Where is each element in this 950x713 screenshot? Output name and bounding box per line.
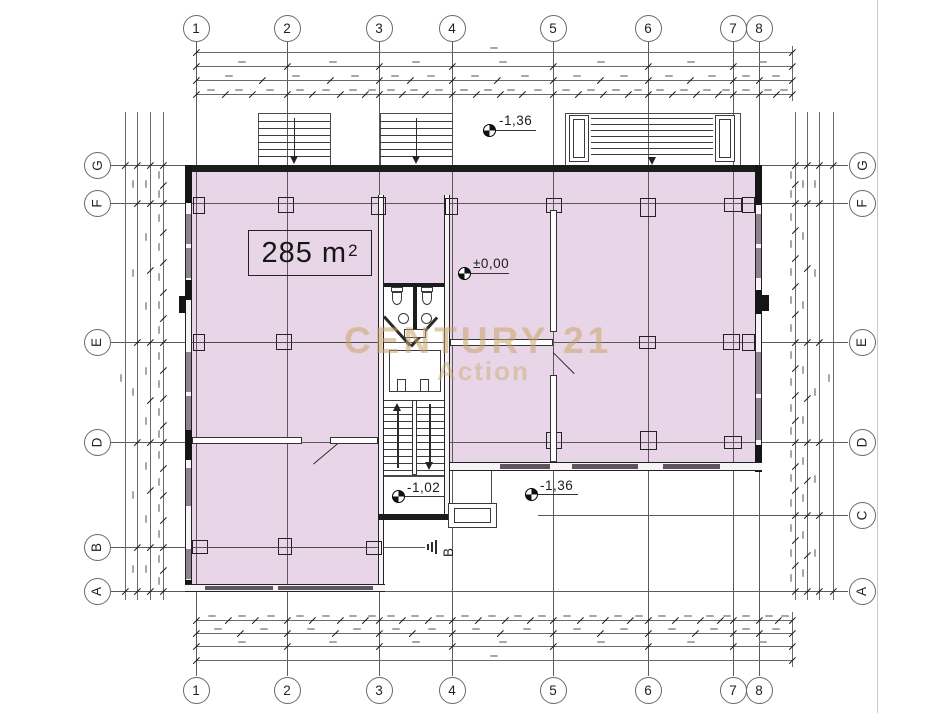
stair-arrow-head xyxy=(425,462,433,470)
dim-number xyxy=(349,89,357,91)
column xyxy=(724,198,742,212)
dim-number xyxy=(597,641,605,643)
dim-number xyxy=(368,89,376,91)
dim-number xyxy=(742,89,750,91)
dim-number xyxy=(790,213,792,221)
ext-stair-edge xyxy=(740,113,741,165)
dim-number xyxy=(158,577,160,585)
dim-number xyxy=(145,302,147,310)
ext-stair-edge xyxy=(258,113,330,114)
dim-number xyxy=(587,89,595,91)
dim-number xyxy=(461,615,469,617)
wall-pier xyxy=(185,280,192,300)
dim-number xyxy=(296,615,304,617)
lift-rail xyxy=(420,379,429,392)
section-marker-label: B xyxy=(441,548,456,557)
dim-number xyxy=(612,89,620,91)
ext-stair-arrow xyxy=(416,118,417,158)
stair-cheek-inner xyxy=(573,119,585,158)
ext-stair-tread xyxy=(591,142,713,143)
lift-rail xyxy=(397,379,406,392)
dim-number xyxy=(490,655,498,657)
grid-bubble-label: A xyxy=(854,586,869,595)
dim-number xyxy=(158,190,160,198)
dim-number xyxy=(353,628,361,630)
dim-number xyxy=(514,615,522,617)
elevation-value: -1,02 xyxy=(407,480,440,495)
ext-stair-arrow-head xyxy=(412,156,420,164)
stair-edge xyxy=(384,475,444,477)
grid-bubble-label: 6 xyxy=(644,683,652,698)
watermark-subbrand: Action xyxy=(437,356,530,387)
level-icon xyxy=(525,488,538,501)
dim-number xyxy=(158,451,160,459)
dim-number xyxy=(684,615,692,617)
dim-number xyxy=(132,388,134,396)
dim-number xyxy=(412,61,420,63)
dim-number xyxy=(759,641,767,643)
ext-stair-edge xyxy=(565,113,566,165)
ext-stair-tread xyxy=(591,148,713,149)
grid-bubble-label: 5 xyxy=(549,683,557,698)
facade-mark xyxy=(179,296,186,313)
column xyxy=(193,197,205,214)
column xyxy=(366,541,382,555)
stair-arrow-down xyxy=(429,404,431,462)
dim-number xyxy=(790,171,792,179)
grid-bubble-label: 8 xyxy=(755,683,763,698)
dim-number xyxy=(722,89,730,91)
dim-number xyxy=(814,180,816,188)
grid-bubble-top-5: 5 xyxy=(540,15,567,42)
dim-number xyxy=(132,269,134,277)
dimension-line xyxy=(807,112,808,600)
dim-number xyxy=(710,628,718,630)
dim-number xyxy=(573,628,581,630)
area-sup: 2 xyxy=(348,241,358,261)
ext-stair-tread xyxy=(591,118,713,119)
grid-line-col-2 xyxy=(287,42,288,676)
dim-number xyxy=(723,615,731,617)
dim-number xyxy=(563,615,571,617)
dim-number xyxy=(158,504,160,512)
dim-number xyxy=(634,89,642,91)
dim-number xyxy=(471,75,479,77)
column xyxy=(445,198,458,215)
dim-number xyxy=(392,628,400,630)
grid-bubble-label: G xyxy=(854,160,869,171)
column xyxy=(724,436,742,449)
dimension-line xyxy=(150,112,151,600)
grid-bubble-label: B xyxy=(89,542,104,551)
ext-stair-tread xyxy=(591,136,713,137)
dim-number xyxy=(329,641,337,643)
window xyxy=(186,214,191,244)
interior-wall-D xyxy=(192,437,302,444)
column xyxy=(742,334,755,351)
grid-bubble-left-B: B xyxy=(84,534,111,561)
dim-number xyxy=(620,75,628,77)
ext-stair-tread xyxy=(591,124,713,125)
grid-bubble-top-6: 6 xyxy=(635,15,662,42)
grid-bubble-label: E xyxy=(854,337,869,346)
dim-number xyxy=(742,75,750,77)
dim-number xyxy=(790,378,792,386)
dim-number xyxy=(387,615,395,617)
dim-number xyxy=(292,75,300,77)
dim-number xyxy=(307,628,315,630)
grid-bubble-label: 3 xyxy=(375,21,383,36)
dim-number xyxy=(790,574,792,582)
dim-number xyxy=(523,628,531,630)
dim-number xyxy=(145,565,147,573)
grid-bubble-right-A: A xyxy=(849,578,876,605)
grid-bubble-right-G: G xyxy=(849,152,876,179)
dim-number xyxy=(790,190,792,198)
window xyxy=(186,549,191,579)
grid-bubble-left-A: A xyxy=(84,578,111,605)
grid-bubble-label: 4 xyxy=(448,21,456,36)
dimension-line xyxy=(819,112,820,600)
grid-bubble-label: D xyxy=(90,437,105,447)
dim-number xyxy=(790,351,792,359)
grid-bubble-top-3: 3 xyxy=(366,15,393,42)
dim-number xyxy=(349,615,357,617)
dim-number xyxy=(387,89,395,91)
area-value: 285 xyxy=(261,237,312,270)
dim-number xyxy=(158,530,160,538)
stair-arrow-head xyxy=(393,403,401,411)
dim-number xyxy=(145,233,147,241)
elevation-value: -1,36 xyxy=(499,113,532,128)
dim-number xyxy=(828,374,830,382)
window xyxy=(756,352,761,394)
ext-stair-tread xyxy=(591,154,713,155)
dim-number xyxy=(614,615,622,617)
dim-number xyxy=(145,180,147,188)
dim-number xyxy=(765,615,773,617)
dim-number xyxy=(764,89,772,91)
dim-number xyxy=(322,615,330,617)
dim-number xyxy=(802,457,804,465)
dim-number xyxy=(635,615,643,617)
interior-wall-5 xyxy=(550,210,557,332)
dim-number xyxy=(225,75,233,77)
grid-bubble-bottom-8: 8 xyxy=(746,677,773,704)
wall-pier xyxy=(755,290,762,314)
dim-number xyxy=(208,615,216,617)
dim-number xyxy=(708,75,716,77)
ext-stair-edge xyxy=(565,113,740,114)
core-wall-west xyxy=(378,195,384,584)
dim-number xyxy=(351,75,359,77)
dim-number xyxy=(499,61,507,63)
window xyxy=(756,398,761,440)
grid-bubble-right-E: E xyxy=(849,329,876,356)
dim-number xyxy=(802,232,804,240)
wall-pier xyxy=(185,430,192,460)
elevation-value: -1,36 xyxy=(540,478,573,493)
grid-bubble-bottom-5: 5 xyxy=(540,677,567,704)
grid-line-col-6 xyxy=(648,42,649,676)
wall-pier xyxy=(755,165,762,205)
dim-number xyxy=(790,240,792,248)
grid-bubble-bottom-1: 1 xyxy=(183,677,210,704)
grid-bubble-label: A xyxy=(89,586,104,595)
dim-number xyxy=(802,416,804,424)
stair-stringer xyxy=(412,400,417,475)
dim-number xyxy=(562,89,570,91)
dim-number xyxy=(780,89,788,91)
grid-bubble-label: 1 xyxy=(192,21,200,36)
window xyxy=(756,214,761,244)
dim-number xyxy=(329,61,337,63)
dim-number xyxy=(790,427,792,435)
floor-plan-canvas: 285 m2 -1,36 ±0,00 -1,02 -1,36 B CENTURY… xyxy=(0,0,950,713)
dim-number xyxy=(484,89,492,91)
grid-bubble-label: F xyxy=(855,199,870,207)
dim-number xyxy=(573,75,581,77)
dim-number xyxy=(132,491,134,499)
grid-bubble-left-G: G xyxy=(84,152,111,179)
dim-number xyxy=(460,89,468,91)
door-leaf xyxy=(313,443,338,465)
grid-line-col-1 xyxy=(196,42,197,676)
dim-number xyxy=(436,615,444,617)
column xyxy=(640,431,657,450)
dim-number xyxy=(790,450,792,458)
dim-number xyxy=(620,628,628,630)
dim-number xyxy=(145,367,147,375)
dim-number xyxy=(427,75,435,77)
dim-number xyxy=(658,615,666,617)
column xyxy=(723,334,740,350)
dim-number xyxy=(267,615,275,617)
dimension-line xyxy=(196,80,792,81)
dim-number xyxy=(802,301,804,309)
dim-number xyxy=(428,628,436,630)
dim-number xyxy=(412,641,420,643)
elevation-value: ±0,00 xyxy=(473,256,509,271)
dim-number xyxy=(521,75,529,77)
level-icon xyxy=(392,490,405,503)
grid-bubble-bottom-7: 7 xyxy=(720,677,747,704)
dim-number xyxy=(158,214,160,222)
grid-bubble-top-4: 4 xyxy=(439,15,466,42)
dim-number xyxy=(534,89,542,91)
toilet-bowl xyxy=(422,292,432,305)
dim-number xyxy=(814,388,816,396)
exterior-wall-top xyxy=(185,165,762,172)
window xyxy=(186,352,191,392)
grid-bubble-left-E: E xyxy=(84,329,111,356)
grid-bubble-label: 6 xyxy=(644,21,652,36)
dim-number xyxy=(158,430,160,438)
dim-number xyxy=(411,615,419,617)
dim-number xyxy=(668,628,676,630)
dimension-line xyxy=(833,112,834,600)
dim-number xyxy=(368,615,376,617)
dim-number xyxy=(214,628,222,630)
dim-number xyxy=(680,89,688,91)
ext-stair-arrow-head xyxy=(290,156,298,164)
dim-number xyxy=(790,499,792,507)
dim-number xyxy=(742,615,750,617)
grid-bubble-label: 1 xyxy=(192,683,200,698)
dim-number xyxy=(772,628,780,630)
ext-stair-edge xyxy=(330,113,331,165)
dim-number xyxy=(435,89,443,91)
ext-stair-arrow xyxy=(294,118,295,158)
dim-number xyxy=(260,628,268,630)
window-sill xyxy=(205,586,273,590)
core-wall-bottom xyxy=(378,514,450,520)
dim-number xyxy=(802,494,804,502)
grid-bubble-label: 7 xyxy=(729,21,737,36)
dim-number xyxy=(772,75,780,77)
stair-arrow-up xyxy=(397,410,399,468)
dim-number xyxy=(472,628,480,630)
dimension-line xyxy=(196,660,792,661)
dim-number xyxy=(158,273,160,281)
window xyxy=(186,248,191,278)
dim-number xyxy=(488,615,496,617)
grid-bubble-bottom-6: 6 xyxy=(635,677,662,704)
dim-number xyxy=(802,531,804,539)
window-sill xyxy=(278,586,373,590)
window xyxy=(186,468,191,506)
dim-number xyxy=(145,515,147,523)
dim-number xyxy=(742,628,750,630)
section-symbol-bar xyxy=(431,542,433,552)
dim-number xyxy=(538,615,546,617)
ext-stair-edge xyxy=(380,113,452,114)
column xyxy=(639,336,656,349)
dim-number xyxy=(790,404,792,412)
grid-bubble-right-F: F xyxy=(849,190,876,217)
grid-bubble-label: E xyxy=(89,337,104,346)
column xyxy=(371,197,386,215)
dim-number xyxy=(145,417,147,425)
dim-number xyxy=(158,478,160,486)
dim-number xyxy=(790,524,792,532)
dim-number xyxy=(790,474,792,482)
grid-bubble-top-1: 1 xyxy=(183,15,210,42)
facade-mark xyxy=(762,295,769,311)
grid-bubble-label: F xyxy=(90,199,105,207)
grid-bubble-label: 2 xyxy=(283,21,291,36)
dim-number xyxy=(145,462,147,470)
dim-number xyxy=(507,89,515,91)
dim-number xyxy=(391,75,399,77)
grid-bubble-right-D: D xyxy=(849,429,876,456)
grid-bubble-label: 2 xyxy=(283,683,291,698)
dim-number xyxy=(814,475,816,483)
wall-pier xyxy=(185,165,192,203)
dim-number xyxy=(706,615,714,617)
ext-stair-edge xyxy=(452,113,453,165)
dimension-line xyxy=(137,112,138,600)
dim-number xyxy=(597,61,605,63)
grid-bubble-top-7: 7 xyxy=(720,15,747,42)
level-icon xyxy=(458,267,471,280)
grid-bubble-label: 8 xyxy=(755,21,763,36)
column xyxy=(640,198,656,217)
dim-number xyxy=(499,641,507,643)
dim-number xyxy=(814,549,816,557)
dim-number xyxy=(238,641,246,643)
grid-bubble-label: G xyxy=(89,160,104,171)
window-sill xyxy=(500,464,550,469)
dim-number xyxy=(207,89,215,91)
level-icon xyxy=(483,124,496,137)
dim-number xyxy=(410,89,418,91)
grid-line-row-C xyxy=(538,515,848,516)
dim-number xyxy=(158,555,160,563)
dim-number xyxy=(665,75,673,77)
beam-line-B xyxy=(205,547,369,548)
entry-side-line xyxy=(491,471,492,504)
dim-number xyxy=(158,352,160,360)
dimension-line xyxy=(125,112,126,600)
grid-bubble-label: 4 xyxy=(448,683,456,698)
dim-number xyxy=(703,89,711,91)
dim-number xyxy=(759,61,767,63)
section-symbol-bar xyxy=(427,544,429,550)
dim-number xyxy=(656,89,664,91)
dim-number xyxy=(687,641,695,643)
dim-number xyxy=(132,180,134,188)
dim-number xyxy=(814,269,816,277)
dim-number xyxy=(238,615,246,617)
dim-number xyxy=(158,326,160,334)
dim-number xyxy=(238,61,246,63)
grid-bubble-top-2: 2 xyxy=(274,15,301,42)
entry-step-inner xyxy=(454,508,491,523)
ext-stair-arrow-head xyxy=(648,157,656,165)
dim-number xyxy=(802,180,804,188)
stair-cheek-inner xyxy=(719,119,731,158)
grid-bubble-label: 3 xyxy=(375,683,383,698)
dim-number xyxy=(158,408,160,416)
dim-number xyxy=(158,243,160,251)
grid-bubble-label: C xyxy=(855,510,870,520)
grid-bubble-right-C: C xyxy=(849,502,876,529)
window-sill xyxy=(663,464,720,469)
dim-number xyxy=(790,324,792,332)
grid-bubble-left-F: F xyxy=(84,190,111,217)
page-edge-right xyxy=(877,0,878,713)
dim-number xyxy=(322,89,330,91)
grid-bubble-label: 7 xyxy=(729,683,737,698)
ext-stair-tread xyxy=(591,130,713,131)
dim-number xyxy=(790,296,792,304)
interior-wall-5 xyxy=(550,375,557,462)
grid-bubble-left-D: D xyxy=(84,429,111,456)
dim-number xyxy=(790,549,792,557)
dim-number xyxy=(158,171,160,179)
grid-bubble-bottom-2: 2 xyxy=(274,677,301,704)
grid-bubble-label: 5 xyxy=(549,21,557,36)
dim-number xyxy=(235,89,243,91)
dim-number xyxy=(781,615,789,617)
dim-number xyxy=(158,380,160,388)
grid-bubble-label: D xyxy=(855,437,870,447)
section-symbol-bar xyxy=(435,540,437,554)
area-unit: m xyxy=(322,237,347,270)
dim-number xyxy=(490,47,498,49)
dim-number xyxy=(120,374,122,382)
